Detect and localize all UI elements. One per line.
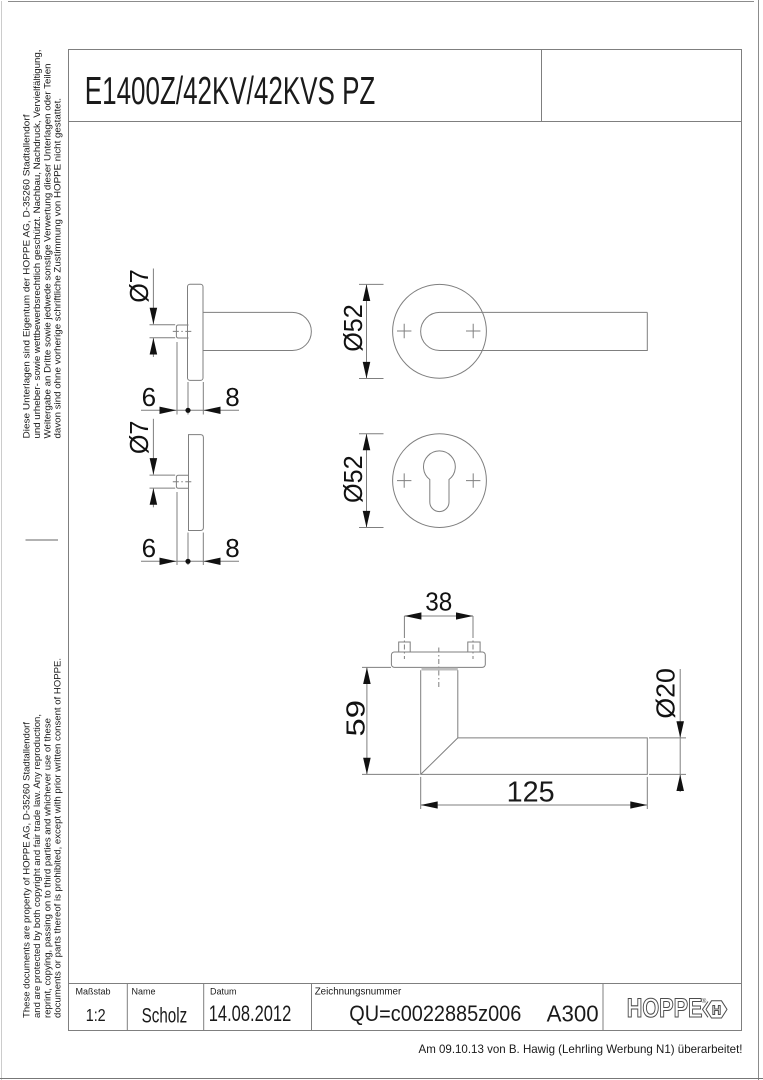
svg-text:8: 8 — [225, 533, 239, 563]
svg-text:®: ® — [702, 997, 707, 1005]
svg-text:Am 09.10.13 von B. Hawig (Lehr: Am 09.10.13 von B. Hawig (Lehrling Werbu… — [419, 1042, 743, 1056]
svg-text:Zeichnungsnummer: Zeichnungsnummer — [315, 987, 402, 998]
svg-text:H: H — [712, 1004, 721, 1018]
svg-text:These documents are property o: These documents are property of HOPPE AG… — [21, 722, 32, 1018]
svg-text:8: 8 — [225, 382, 239, 412]
svg-text:125: 125 — [507, 777, 555, 809]
svg-text:59: 59 — [340, 700, 370, 737]
svg-text:6: 6 — [142, 382, 156, 412]
svg-text:Scholz: Scholz — [142, 1005, 188, 1028]
svg-text:A300: A300 — [547, 1001, 599, 1027]
svg-text:and are protected by both copy: and are protected by both copyright and … — [31, 714, 42, 1018]
svg-text:14.08.2012: 14.08.2012 — [209, 1001, 292, 1026]
svg-text:reprint, copying, passing on t: reprint, copying, passing on to third pa… — [41, 718, 52, 1018]
svg-text:Ø52: Ø52 — [338, 304, 368, 352]
svg-text:Maßstab: Maßstab — [76, 987, 111, 997]
svg-text:Weitergabe an Dritte sowie jed: Weitergabe an Dritte sowie jedwede sonst… — [41, 64, 52, 439]
svg-text:Ø7: Ø7 — [124, 421, 154, 455]
svg-text:Datum: Datum — [210, 987, 237, 997]
svg-text:Ø7: Ø7 — [124, 269, 154, 303]
svg-text:documents or parts thereof is: documents or parts thereof is prohibited… — [52, 658, 63, 1018]
svg-text:und urheber- sowie wettbewerbs: und urheber- sowie wettbewerbsrechtlich … — [31, 50, 42, 439]
svg-text:E1400Z/42KV/42KVS PZ: E1400Z/42KV/42KVS PZ — [85, 70, 376, 113]
svg-text:davon sind ohne vorherige schr: davon sind ohne vorherige schriftliche Z… — [52, 98, 63, 439]
svg-text:QU=c0022885z006: QU=c0022885z006 — [349, 1001, 521, 1026]
svg-text:Ø52: Ø52 — [338, 455, 368, 503]
svg-text:HOPPE: HOPPE — [627, 993, 703, 1023]
svg-text:Ø20: Ø20 — [650, 668, 680, 719]
svg-text:Diese Unterlagen sind Eigentum: Diese Unterlagen sind Eigentum der HOPPE… — [21, 114, 32, 438]
svg-text:38: 38 — [425, 587, 452, 617]
svg-text:1:2: 1:2 — [86, 1005, 106, 1025]
svg-text:6: 6 — [142, 533, 156, 563]
svg-text:Name: Name — [132, 987, 156, 997]
